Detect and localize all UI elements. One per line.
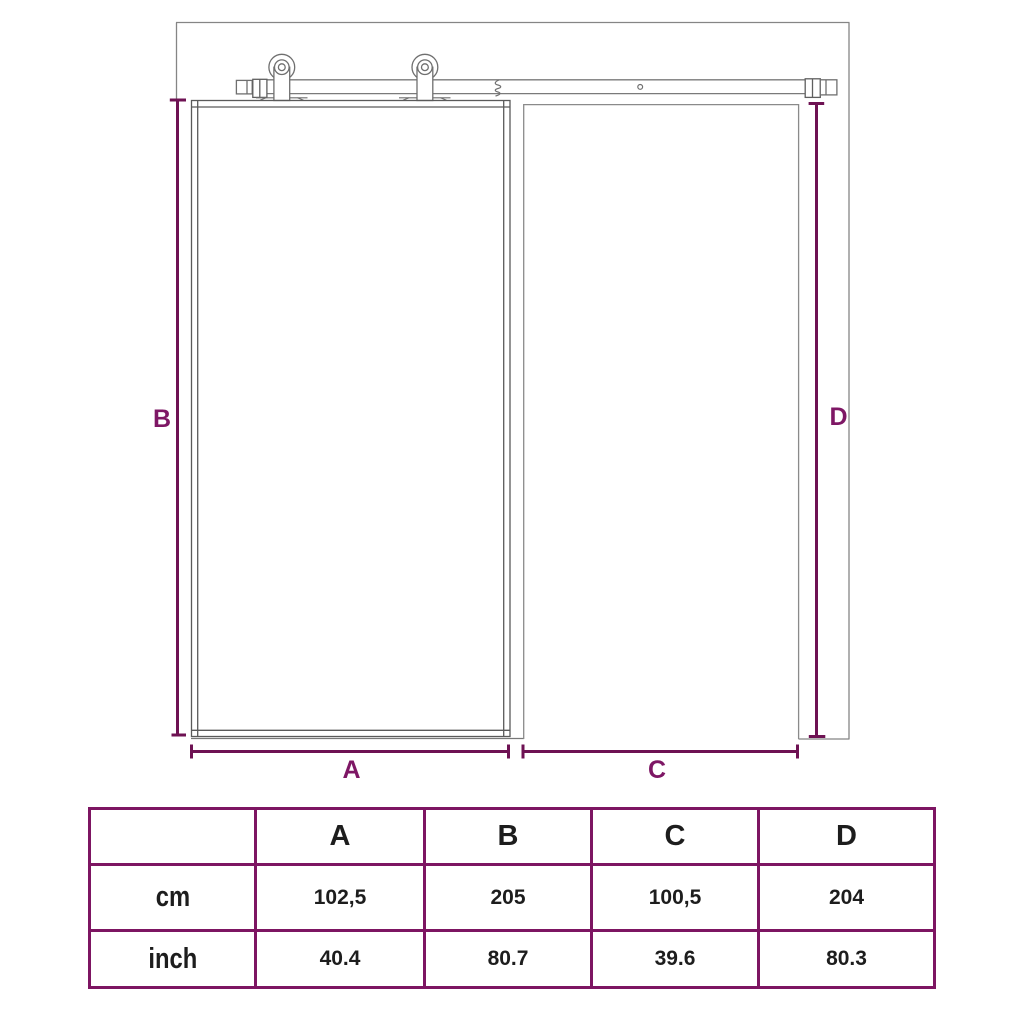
- svg-text:C: C: [648, 756, 666, 784]
- svg-text:D: D: [829, 403, 847, 431]
- svg-text:A: A: [342, 756, 360, 784]
- svg-text:B: B: [153, 405, 171, 433]
